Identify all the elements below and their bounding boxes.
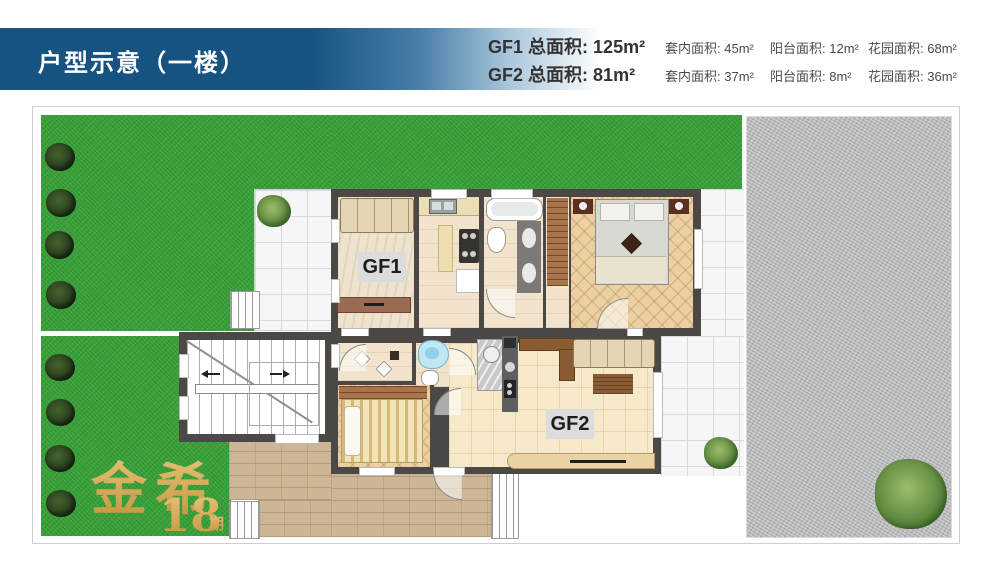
wall-kitchen-bath — [479, 197, 484, 328]
gf1-sofa — [340, 198, 414, 233]
lamp — [675, 202, 683, 210]
stairwell-window — [179, 396, 189, 420]
stove-icon — [504, 380, 516, 398]
gf1-window-top — [431, 189, 467, 199]
gf2-window-bottom — [359, 467, 395, 476]
gf2-total-area: GF2 总面积: 81m² — [488, 61, 635, 87]
stats-row-gf2: GF2 总面积: 81m² 套内面积: 37m² 阳台面积: 8m² 花园面积:… — [0, 61, 1000, 87]
bush-icon — [45, 231, 74, 259]
floorplan-page: 户型示意（一楼） GF1 总面积: 125m² 套内面积: 45m² 阳台面积:… — [0, 0, 1000, 562]
gf1-total-area: GF1 总面积: 125m² — [488, 33, 645, 59]
gf2-sofa — [573, 339, 655, 368]
pillow — [344, 406, 361, 456]
burner — [462, 251, 468, 257]
gf1-vanity — [517, 221, 541, 293]
gf2-coffee-table — [593, 374, 633, 394]
sink-basin — [432, 202, 441, 210]
tub-inner — [491, 202, 538, 216]
stairs-arrow-right-icon — [283, 370, 290, 378]
gf2-headboard — [339, 386, 427, 399]
gf1-kitchen-island — [438, 225, 453, 272]
floorplan-canvas: 金希 18 期 GF1 — [32, 106, 960, 544]
building-gf1: GF1 — [331, 189, 701, 336]
bush-icon — [45, 445, 75, 472]
gf2-window-right — [653, 372, 663, 438]
pillow — [634, 203, 664, 221]
pillow — [600, 203, 630, 221]
gf1-fridge — [456, 269, 481, 293]
building-gf2: GF2 — [331, 336, 661, 474]
watermark-suffix: 期 — [209, 513, 224, 534]
patio-brick-left — [229, 438, 331, 500]
stairwell — [179, 332, 333, 442]
gf2-kitchen-counter — [502, 336, 518, 412]
vanity-sink-icon — [522, 228, 536, 248]
stove-icon — [459, 229, 479, 263]
tree-icon — [704, 437, 738, 469]
tv-icon — [570, 460, 626, 463]
gf1-window-left — [331, 279, 340, 303]
tub-water — [425, 347, 439, 359]
wall-living-kitchen — [414, 197, 419, 247]
bush-icon — [46, 399, 75, 426]
burner — [507, 383, 512, 388]
kitchen-sink-icon — [505, 362, 515, 372]
gf2-door-gap-left — [331, 344, 340, 368]
stairwell-door-gap — [275, 434, 319, 444]
stairs-arrow-stem — [208, 373, 220, 375]
bathtub-icon — [486, 198, 543, 221]
garden-steps-lower — [229, 501, 260, 539]
gf1-inner-area: 套内面积: 45m² — [665, 38, 754, 57]
wall-bedroom-living — [430, 385, 434, 467]
walkway-tile-upper — [699, 189, 744, 341]
gf2-inner-area: 套内面积: 37m² — [665, 66, 754, 85]
gf1-balcony-area: 阳台面积: 12m² — [770, 38, 859, 57]
garden-steps-upper — [230, 291, 260, 329]
gf1-window-top — [491, 189, 533, 199]
large-tree-icon — [875, 459, 947, 529]
lamp — [579, 202, 587, 210]
bush-icon — [46, 490, 76, 517]
gf2-laundry-column — [477, 339, 505, 391]
gf2-bed — [341, 399, 423, 463]
washbasin-icon — [483, 346, 500, 363]
gf1-double-bed — [595, 199, 669, 285]
kitchen-sink-icon — [429, 199, 457, 214]
patio-steps-bottom — [491, 471, 519, 539]
gf2-garden-area: 花园面积: 36m² — [868, 66, 957, 85]
sink-basin — [444, 202, 453, 210]
toilet-icon — [487, 227, 506, 253]
gf2-balcony-area: 阳台面积: 8m² — [770, 66, 852, 85]
stats-row-gf1: GF1 总面积: 125m² 套内面积: 45m² 阳台面积: 12m² 花园面… — [0, 33, 1000, 59]
gf1-garden-area: 花园面积: 68m² — [868, 38, 957, 57]
patio-brick-bottom — [331, 471, 491, 537]
gf1-window-left — [331, 219, 340, 243]
patio-brick-left2 — [258, 500, 331, 537]
bush-icon — [46, 281, 76, 309]
tv-icon — [364, 303, 384, 306]
gf1-wardrobe — [547, 198, 568, 286]
burner — [470, 233, 476, 239]
gf1-window-right — [694, 229, 703, 289]
nightstand-icon — [573, 199, 593, 214]
gf1-tv-cabinet — [337, 297, 411, 313]
jacuzzi-tub-icon — [418, 340, 449, 369]
burner — [507, 390, 512, 395]
gf2-tv-cabinet — [507, 453, 655, 469]
bed-blanket — [596, 256, 666, 283]
bed-cushion — [621, 233, 642, 254]
tree-icon — [257, 195, 291, 227]
gf2-bedroom-door-arc — [434, 388, 461, 415]
stairs-arrow-left-icon — [201, 370, 208, 378]
bush-icon — [45, 354, 75, 381]
appliance-icon — [504, 338, 516, 348]
stairs-arrow-stem — [270, 373, 282, 375]
burner — [470, 251, 476, 257]
bush-icon — [45, 143, 75, 171]
gf2-room-label: GF2 — [546, 409, 594, 439]
stool-icon — [376, 361, 393, 378]
stairwell-window — [179, 354, 189, 378]
gf1-room-label: GF1 — [358, 252, 406, 282]
bush-icon — [46, 189, 76, 217]
nightstand-icon — [669, 199, 689, 214]
side-table-icon — [390, 351, 399, 360]
vanity-sink-icon — [522, 263, 536, 283]
burner — [462, 233, 468, 239]
